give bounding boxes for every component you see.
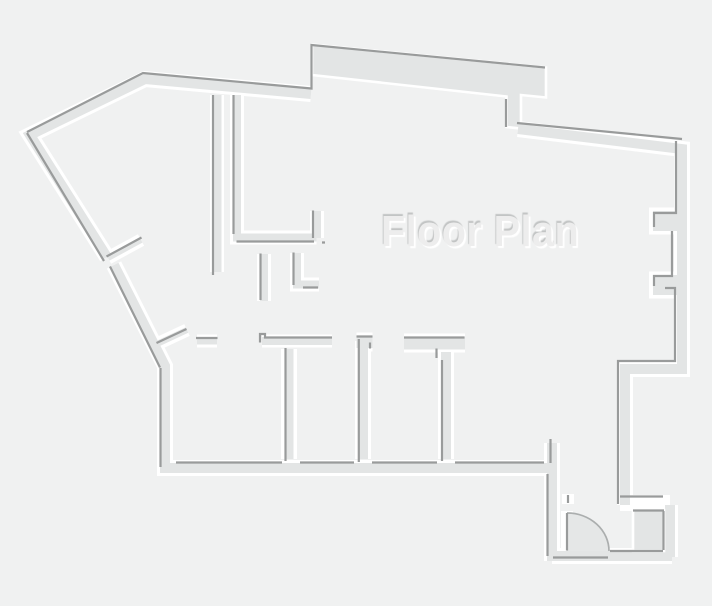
interior-wall-b [237, 95, 319, 301]
floor-plan-page: Floor Plan [0, 0, 712, 606]
wall-halo-layer [30, 79, 682, 561]
plan-title: Floor Plan [381, 207, 588, 257]
vestibule-pillar [633, 510, 664, 551]
wall-band-layer [30, 79, 682, 561]
entry-door [567, 513, 609, 551]
floor-plan-drawing [0, 0, 712, 606]
